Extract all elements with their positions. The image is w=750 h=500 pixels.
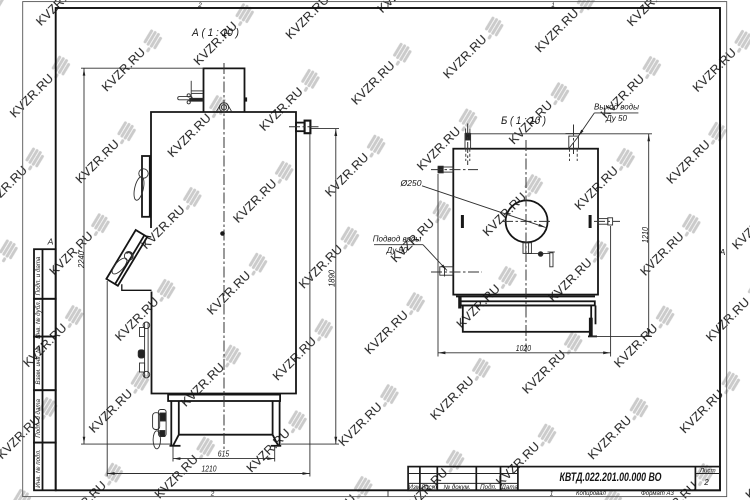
svg-text:№ докум.: № докум. bbox=[443, 484, 470, 491]
svg-text:Дата: Дата bbox=[501, 484, 519, 491]
svg-text:1890: 1890 bbox=[327, 270, 336, 287]
svg-text:1210: 1210 bbox=[202, 465, 217, 474]
svg-text:615: 615 bbox=[218, 450, 230, 459]
svg-text:Ду 50: Ду 50 bbox=[386, 246, 408, 255]
svg-text:Подп.: Подп. bbox=[480, 484, 496, 491]
svg-text:2240: 2240 bbox=[77, 251, 86, 269]
svg-text:Выход воды: Выход воды bbox=[594, 102, 639, 111]
svg-text:Подвод воды: Подвод воды bbox=[373, 235, 422, 244]
svg-text:1020: 1020 bbox=[516, 344, 532, 353]
svg-text:2: 2 bbox=[703, 478, 709, 487]
svg-text:1: 1 bbox=[550, 490, 554, 497]
svg-text:Инв. № подл.: Инв. № подл. bbox=[35, 449, 42, 487]
svg-text:Б ( 1 : 10 ): Б ( 1 : 10 ) bbox=[501, 115, 546, 127]
svg-text:Ø250: Ø250 bbox=[399, 178, 421, 188]
svg-text:Формат А3: Формат А3 bbox=[641, 491, 674, 497]
svg-text:Копировал: Копировал bbox=[576, 491, 606, 497]
svg-text:Подп. и дата: Подп. и дата bbox=[35, 398, 42, 437]
svg-text:Ду 50: Ду 50 bbox=[605, 114, 627, 123]
svg-text:Подп. и дата: Подп. и дата bbox=[35, 256, 42, 295]
svg-text:Инв. № дубл.: Инв. № дубл. bbox=[35, 301, 42, 339]
svg-text:А ( 1 : 10 ): А ( 1 : 10 ) bbox=[191, 27, 239, 39]
svg-text:А: А bbox=[719, 247, 726, 257]
svg-text:Взам. инв. №: Взам. инв. № bbox=[35, 346, 42, 385]
svg-text:2: 2 bbox=[210, 490, 215, 497]
svg-text:А: А bbox=[47, 237, 54, 247]
svg-text:Лист: Лист bbox=[420, 484, 437, 491]
svg-text:1210: 1210 bbox=[641, 227, 650, 243]
svg-text:КВТД.022.201.00.000 ВО: КВТД.022.201.00.000 ВО bbox=[560, 471, 662, 484]
svg-text:Изм: Изм bbox=[409, 484, 421, 491]
svg-text:Лист: Лист bbox=[699, 468, 716, 475]
